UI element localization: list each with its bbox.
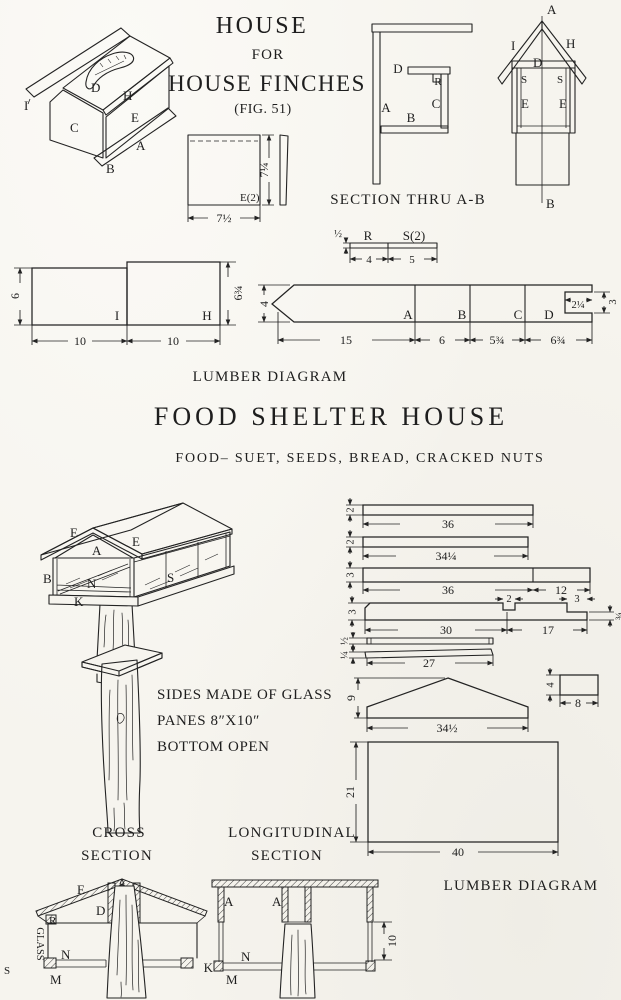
- section-board-C: [441, 74, 448, 128]
- page-title-line2: FOR: [252, 47, 285, 63]
- part-label-M: M: [226, 972, 238, 987]
- board3-dims: 3 36 12: [346, 561, 591, 597]
- part-label-B: B: [458, 307, 467, 322]
- small-block-outline: [560, 675, 598, 695]
- small-block-diagram: 4 8: [546, 668, 599, 710]
- dim-6-3-4: 6¾: [231, 286, 245, 301]
- block-width: 8: [575, 696, 581, 710]
- front-roof-right: [542, 21, 586, 84]
- dim-5: 5: [409, 254, 415, 266]
- dim-6: 6: [439, 333, 445, 347]
- strip-width-dims: 4 5: [350, 248, 437, 266]
- front-view-drawing: A I H D S S E E B: [498, 2, 586, 211]
- board2-thickness: 2: [346, 539, 357, 544]
- long-sill-right: [366, 961, 375, 971]
- end-piece-diagram: E(2) 7¼ 7½: [188, 135, 288, 225]
- part-label-B: B: [407, 110, 416, 125]
- lumber-diagram-birdhouse: I H 6 6¾ 10 10 LUMBER DIAGRAM: [8, 262, 347, 385]
- glass-note-1: SIDES MADE OF GLASS: [157, 687, 332, 703]
- gable-width: 34½: [437, 721, 458, 735]
- board4-dims: 3 2 3 30 17 ¾: [348, 594, 621, 637]
- part-label-S: S: [4, 965, 10, 977]
- board6-width: 27: [423, 656, 435, 670]
- board-I-outline: [32, 268, 127, 325]
- part-label-S: S: [167, 570, 174, 585]
- section-headings: CROSS SECTION LONGITUDINAL SECTION: [81, 825, 356, 864]
- panel-height: 21: [343, 786, 357, 798]
- dim-10-right: 10: [167, 334, 179, 348]
- roof-right-slope: [93, 503, 232, 554]
- board2-outline: [363, 537, 528, 547]
- part-label-C: C: [514, 307, 523, 322]
- board1-width: 36: [442, 517, 454, 531]
- food-shelter-board-stack: 2 36 2 34¼ 3 36: [340, 498, 621, 670]
- part-label-I: I: [511, 38, 515, 53]
- part-label-B: B: [43, 571, 52, 586]
- board5-outline: [367, 638, 493, 644]
- food-shelter-headings: FOOD SHELTER HOUSE FOOD– SUET, SEEDS, BR…: [154, 402, 545, 466]
- part-label-S2: S: [557, 74, 563, 86]
- part-label-A2: A: [272, 894, 282, 909]
- part-label-K: K: [74, 594, 84, 609]
- glass-note-3: BOTTOM OPEN: [157, 739, 270, 755]
- board3-width2: 12: [555, 583, 567, 597]
- dim-notch-3: 3: [608, 299, 619, 304]
- board6-thickness: ¼: [340, 651, 351, 659]
- lumber-diagram-caption-bottom: LUMBER DIAGRAM: [444, 878, 599, 894]
- long-center-post-left: [282, 887, 288, 922]
- dim-7-quarter: 7¼: [257, 163, 271, 178]
- glass-notes: SIDES MADE OF GLASS PANES 8″X10″ BOTTOM …: [157, 687, 332, 755]
- part-label-E2: E(2): [240, 192, 260, 204]
- food-note: FOOD– SUET, SEEDS, BREAD, CRACKED NUTS: [175, 451, 544, 466]
- dim-6: 6: [8, 293, 22, 299]
- part-label-C: C: [432, 96, 441, 111]
- part-label-D: D: [91, 80, 100, 95]
- dim-4: 4: [366, 254, 372, 266]
- part-label-A: A: [136, 138, 146, 153]
- part-label-N: N: [61, 947, 71, 962]
- board4-outline: [365, 603, 587, 620]
- cross-heading-1: CROSS: [92, 825, 146, 841]
- food-shelter-isometric: E E A B N K S: [41, 503, 234, 833]
- board4-notch1: 2: [506, 594, 511, 605]
- end-piece-dimensions: 7¼ 7½: [188, 135, 274, 225]
- part-label-A: A: [381, 100, 391, 115]
- front-right-wall: [570, 68, 575, 133]
- board2-width: 34¼: [436, 549, 457, 563]
- part-label-H: H: [202, 308, 211, 323]
- scanned-plan-page: HOUSE FOR HOUSE FINCHES (FIG. 51) I D H …: [0, 0, 621, 1000]
- part-label-D: D: [533, 55, 542, 70]
- part-label-S2: S(2): [403, 228, 425, 243]
- board5-end-caps: [371, 638, 489, 644]
- dim-15: 15: [340, 333, 352, 347]
- lumber-diagram-long-board: A B C D 4 15 6 5¾ 6¾ 2¼: [257, 285, 619, 347]
- part-label-H: H: [566, 36, 575, 51]
- board4-end-dim: ¾: [615, 612, 621, 620]
- section-top-board: [372, 24, 472, 32]
- dim-6-3-4: 6¾: [551, 333, 566, 347]
- part-label-E2: E: [559, 96, 567, 111]
- long-dim-10: 10: [374, 922, 399, 960]
- section-left-board: [373, 32, 380, 184]
- long-heading-2: SECTION: [251, 848, 323, 864]
- tree-trunk-lower: [101, 660, 140, 833]
- part-label-B: B: [106, 161, 115, 176]
- cross-heading-2: SECTION: [81, 848, 153, 864]
- part-label-E1: E: [70, 525, 78, 540]
- roof-left-slope: [41, 503, 183, 555]
- board4-width2: 17: [542, 623, 554, 637]
- plan-drawing-canvas: HOUSE FOR HOUSE FINCHES (FIG. 51) I D H …: [0, 0, 621, 1000]
- long-post-right: [367, 887, 373, 922]
- birdhouse-left-roof: [26, 28, 130, 97]
- long-roof-board: [212, 880, 378, 887]
- part-label-D: D: [393, 61, 402, 76]
- front-roof-left: [498, 21, 542, 84]
- panel-outline: [368, 742, 558, 842]
- glass-note-2: PANES 8″X10″: [157, 713, 260, 729]
- longitudinal-section-drawing: A A K M N 10: [204, 880, 399, 998]
- gable-height: 9: [344, 695, 358, 701]
- part-label-E: E: [77, 882, 85, 897]
- part-label-D: D: [96, 903, 105, 918]
- part-label-A1: A: [224, 894, 234, 909]
- part-label-E1: E: [521, 96, 529, 111]
- dim-height-4: 4: [257, 301, 271, 307]
- part-label-A: A: [403, 307, 413, 322]
- gable-piece-outline: [367, 678, 528, 718]
- long-heading-1: LONGITUDINAL: [228, 825, 356, 841]
- dim-2-1-4: 2¼: [571, 300, 584, 311]
- dim-7-half: 7½: [217, 211, 232, 225]
- part-label-R: R: [434, 76, 442, 88]
- side-strip: [280, 135, 288, 205]
- part-label-R: R: [49, 915, 57, 927]
- board4-thickness: 3: [348, 609, 359, 614]
- front-left-wall: [512, 68, 517, 133]
- page-title-line1: HOUSE: [216, 13, 309, 39]
- datum-label-B: B: [546, 196, 555, 211]
- board3-width: 36: [442, 583, 454, 597]
- long-board-dividers: [415, 285, 525, 322]
- figure-caption: (FIG. 51): [234, 102, 291, 117]
- isometric-birdhouse-drawing: I D H C E B A: [24, 28, 176, 176]
- cross-section-drawing: E D R GLASS S N M: [4, 879, 207, 998]
- part-label-N: N: [241, 949, 251, 964]
- part-label-A: A: [92, 543, 102, 558]
- board4-notch2: 3: [574, 594, 579, 605]
- part-label-I: I: [115, 308, 119, 323]
- page-title-line3: HOUSE FINCHES: [168, 71, 366, 96]
- section-bottom-board: [381, 126, 448, 133]
- part-label-R: R: [364, 228, 373, 243]
- lumber-diagram-perch-strip: ½ R S(2) 4 5: [334, 228, 437, 266]
- board4-width: 30: [440, 623, 452, 637]
- glass-label: GLASS: [34, 927, 45, 960]
- long-center-post-right: [305, 887, 311, 922]
- board5-thickness: ½: [340, 637, 351, 645]
- board3-thickness: 3: [346, 572, 357, 577]
- part-label-E2: E: [132, 534, 140, 549]
- section-view-drawing: D R A C B SECTION THRU A-B: [330, 24, 486, 208]
- board3-outline: [363, 568, 590, 582]
- strip-thickness-arrows: [343, 238, 350, 254]
- block-height: 4: [546, 682, 557, 688]
- dim-10-left: 10: [74, 334, 86, 348]
- long-tree-trunk: [280, 924, 315, 998]
- long-sill-left: [214, 961, 223, 971]
- title-block: HOUSE FOR HOUSE FINCHES (FIG. 51): [168, 13, 366, 117]
- part-label-E: E: [131, 110, 139, 125]
- dim-5-3-4: 5¾: [490, 333, 505, 347]
- part-label-C: C: [70, 120, 79, 135]
- panel-width: 40: [452, 845, 464, 859]
- perch-strip-outline: [350, 243, 437, 248]
- entrance-slot-hatching: [95, 55, 126, 75]
- food-shelter-title: FOOD SHELTER HOUSE: [154, 402, 508, 431]
- bottom-board-front: [49, 595, 138, 606]
- part-label-D: D: [544, 307, 553, 322]
- part-label-H: H: [123, 88, 132, 103]
- datum-label-A: A: [547, 2, 557, 17]
- dim-10: 10: [385, 935, 399, 947]
- bottom-board-side: [138, 566, 234, 606]
- section-thru-caption: SECTION THRU A-B: [330, 192, 486, 208]
- lumber-diagram-caption-top: LUMBER DIAGRAM: [193, 369, 348, 385]
- dim-half: ½: [334, 229, 342, 240]
- board1-outline: [363, 505, 533, 515]
- part-label-M: M: [50, 972, 62, 987]
- part-label-I: I: [24, 98, 28, 113]
- part-label-S1: S: [521, 74, 527, 86]
- gable-piece-diagram: 9 34½: [344, 678, 528, 735]
- section-shelf-D: [408, 67, 450, 74]
- large-panel-diagram: 21 40 LUMBER DIAGRAM: [343, 742, 598, 894]
- cross-sill-right: [181, 958, 193, 968]
- birdhouse-eave-edge: [103, 58, 173, 115]
- front-lower-board: [516, 133, 569, 185]
- board1-thickness: 2: [346, 507, 357, 512]
- part-label-K: K: [204, 960, 214, 975]
- part-label-N: N: [87, 576, 97, 591]
